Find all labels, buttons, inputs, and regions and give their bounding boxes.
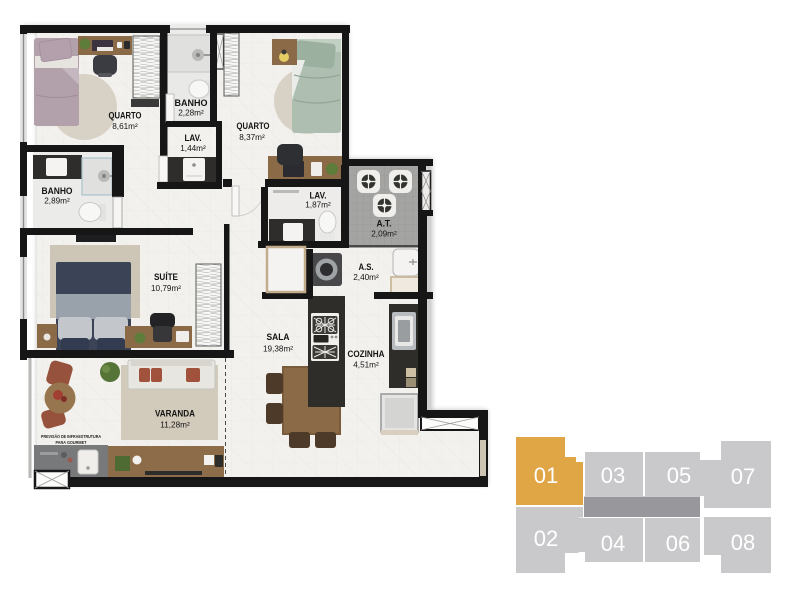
svg-text:06: 06 [666, 531, 690, 556]
svg-text:SUÍTE: SUÍTE [154, 272, 178, 282]
svg-text:11,28m²: 11,28m² [160, 421, 190, 430]
svg-text:SALA: SALA [267, 332, 290, 342]
svg-text:1,87m²: 1,87m² [305, 201, 331, 210]
svg-text:QUARTO: QUARTO [109, 111, 142, 121]
svg-text:BANHO: BANHO [42, 186, 73, 196]
svg-text:8,37m²: 8,37m² [239, 133, 265, 142]
svg-text:08: 08 [731, 530, 755, 555]
svg-text:05: 05 [667, 463, 691, 488]
svg-text:PARA GOURMET: PARA GOURMET [56, 440, 87, 445]
svg-text:10,79m²: 10,79m² [151, 284, 181, 293]
svg-text:07: 07 [731, 464, 755, 489]
svg-text:COZINHA: COZINHA [348, 349, 385, 359]
svg-text:QUARTO: QUARTO [237, 121, 270, 131]
svg-text:1,44m²: 1,44m² [180, 144, 206, 153]
svg-text:03: 03 [601, 463, 625, 488]
svg-text:VARANDA: VARANDA [155, 409, 195, 419]
svg-text:4,51m²: 4,51m² [353, 361, 379, 370]
svg-text:BANHO: BANHO [175, 98, 208, 108]
svg-text:01: 01 [534, 463, 558, 488]
svg-text:PREVISÃO DE INFRAESTRUTURA: PREVISÃO DE INFRAESTRUTURA [41, 434, 101, 439]
svg-text:A.T.: A.T. [377, 219, 392, 229]
svg-text:02: 02 [534, 526, 558, 551]
svg-text:04: 04 [601, 531, 625, 556]
svg-text:A.S.: A.S. [359, 262, 374, 272]
svg-text:19,38m²: 19,38m² [263, 345, 293, 354]
svg-text:LAV.: LAV. [185, 133, 202, 143]
svg-text:2,09m²: 2,09m² [371, 230, 397, 239]
svg-text:8,61m²: 8,61m² [112, 122, 138, 131]
svg-text:2,40m²: 2,40m² [353, 273, 379, 282]
svg-text:2,28m²: 2,28m² [178, 109, 204, 118]
svg-text:2,89m²: 2,89m² [44, 197, 70, 206]
svg-text:LAV.: LAV. [310, 191, 327, 201]
